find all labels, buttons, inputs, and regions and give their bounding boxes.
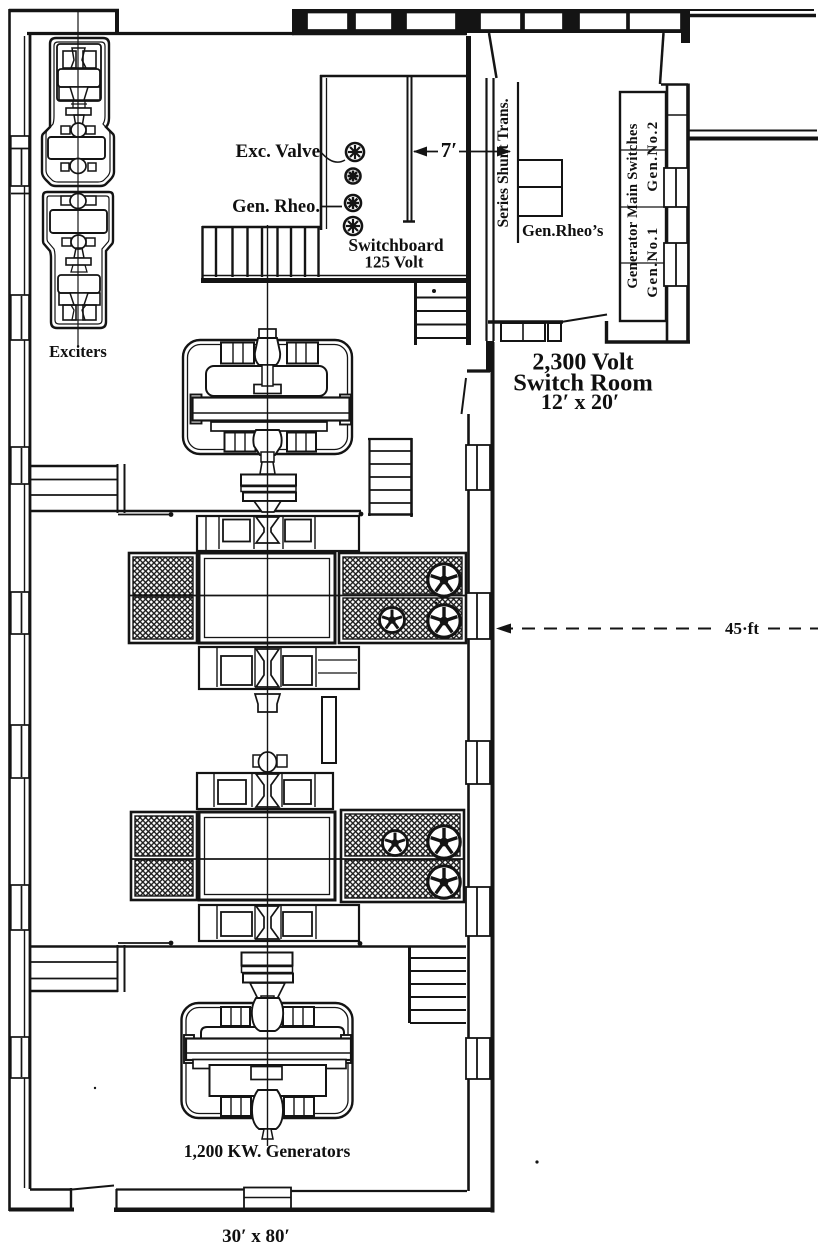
svg-text:30′ x 80′: 30′ x 80′ bbox=[222, 1226, 290, 1247]
svg-text:45·ft: 45·ft bbox=[725, 619, 759, 638]
svg-text:1,200 KW. Generators: 1,200 KW. Generators bbox=[184, 1141, 351, 1161]
svg-text:Exc. Valve: Exc. Valve bbox=[236, 141, 320, 162]
svg-text:Gen.Rheo’s: Gen.Rheo’s bbox=[522, 221, 604, 240]
svg-text:Gen. Rheo.: Gen. Rheo. bbox=[232, 197, 320, 217]
svg-text:Series Shunt Trans.: Series Shunt Trans. bbox=[495, 98, 512, 227]
svg-text:Exciters: Exciters bbox=[49, 342, 107, 361]
svg-text:Generator Main Switches: Generator Main Switches bbox=[625, 123, 641, 288]
svg-text:7′: 7′ bbox=[441, 138, 457, 162]
svg-text:125 Volt: 125 Volt bbox=[364, 253, 423, 272]
svg-text:Gen.No.1: Gen.No.1 bbox=[645, 226, 661, 297]
svg-text:Gen.No.2: Gen.No.2 bbox=[645, 120, 661, 191]
svg-text:12′ x 20′: 12′ x 20′ bbox=[541, 389, 619, 414]
